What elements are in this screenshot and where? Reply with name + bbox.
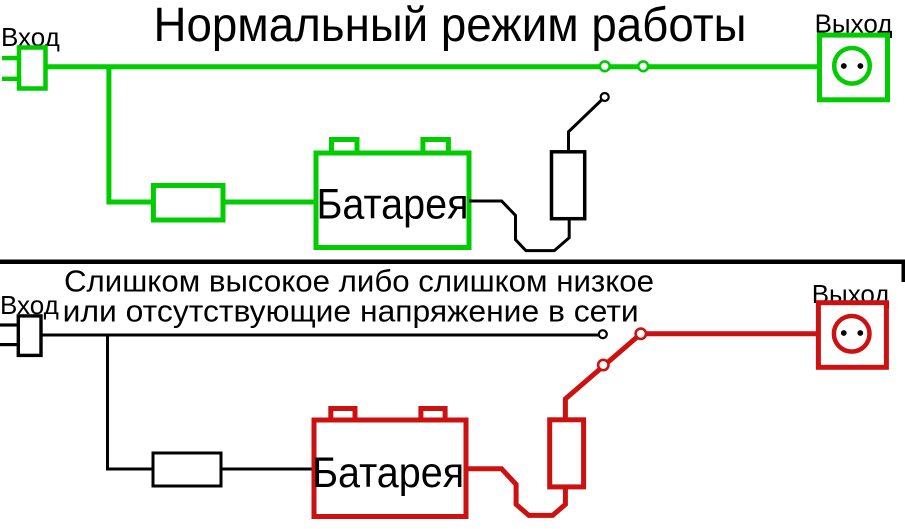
svg-text:или отсутствующие напряжение в: или отсутствующие напряжение в сети [63,293,639,328]
svg-text:Батарея: Батарея [317,180,469,228]
svg-text:Нормальный режим работы: Нормальный режим работы [154,0,747,52]
svg-text:Батарея: Батарея [312,449,464,497]
